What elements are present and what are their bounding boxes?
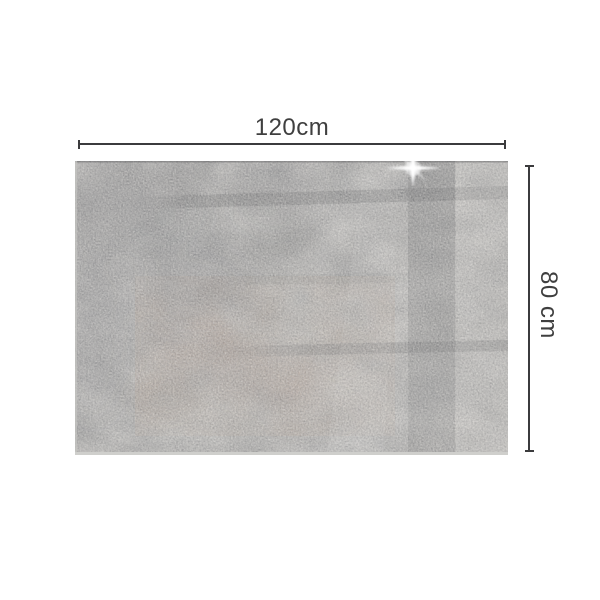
- height-line-bottom-cap: [525, 450, 534, 452]
- width-dimension-label: 120cm: [78, 114, 506, 142]
- glass-left-edge: [75, 161, 77, 452]
- width-line-left-cap: [78, 140, 80, 149]
- height-dimension-line: [528, 165, 530, 452]
- width-line-right-cap: [504, 140, 506, 149]
- height-line-top-cap: [525, 165, 534, 167]
- glass-bottom-edge: [75, 452, 508, 455]
- width-dimension-line: [78, 143, 506, 145]
- product-dimension-diagram: 120cm 80 cm: [0, 0, 600, 600]
- concrete-texture-image: [75, 161, 508, 455]
- height-dimension-label: 80 cm: [534, 271, 562, 339]
- glass-top-edge: [75, 161, 508, 163]
- glass-board-photo: [75, 161, 508, 455]
